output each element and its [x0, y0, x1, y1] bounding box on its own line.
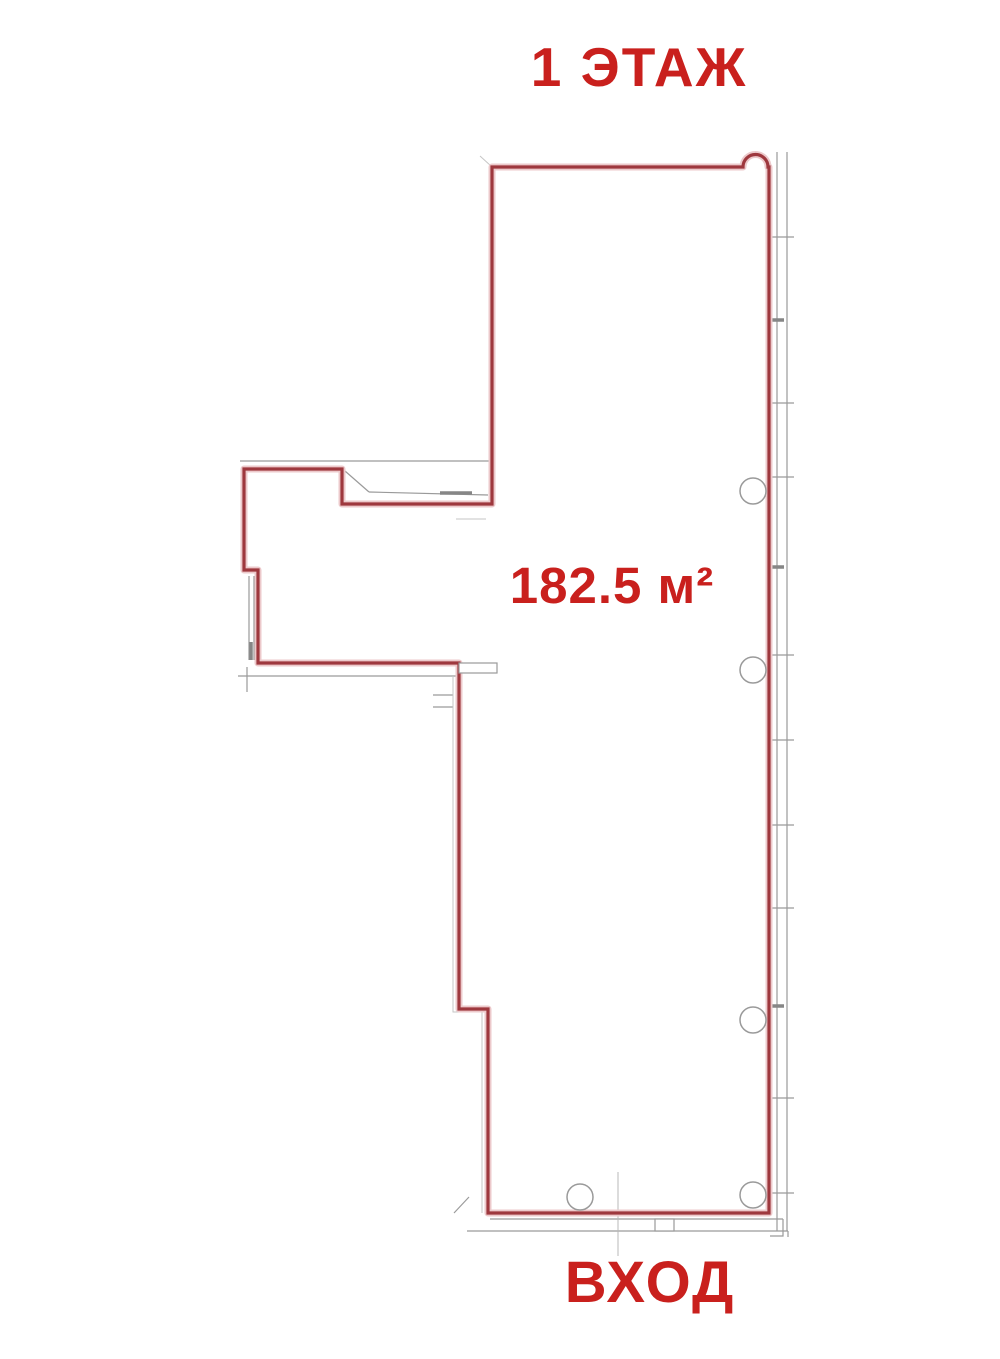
door-opening	[459, 663, 497, 673]
floor-plan-drawing	[0, 0, 1000, 1359]
construction-lines	[238, 156, 788, 1256]
unit-outline-halo	[244, 155, 769, 1214]
column-circle	[740, 657, 766, 683]
alcove-ramp-diagonal	[345, 471, 369, 492]
area-label: 182.5 м²	[510, 560, 715, 611]
column-circle	[740, 1007, 766, 1033]
unit-outline	[244, 155, 769, 1214]
entrance-door-opening	[655, 1219, 674, 1231]
floor-plan-page: 1 ЭТАЖ	[0, 0, 1000, 1359]
entrance-label: ВХОД	[565, 1254, 736, 1312]
column-circle	[567, 1184, 593, 1210]
column-circle	[740, 478, 766, 504]
column-circle	[740, 1182, 766, 1208]
entrance-left-slash	[454, 1197, 469, 1213]
corner-tick	[480, 156, 491, 166]
